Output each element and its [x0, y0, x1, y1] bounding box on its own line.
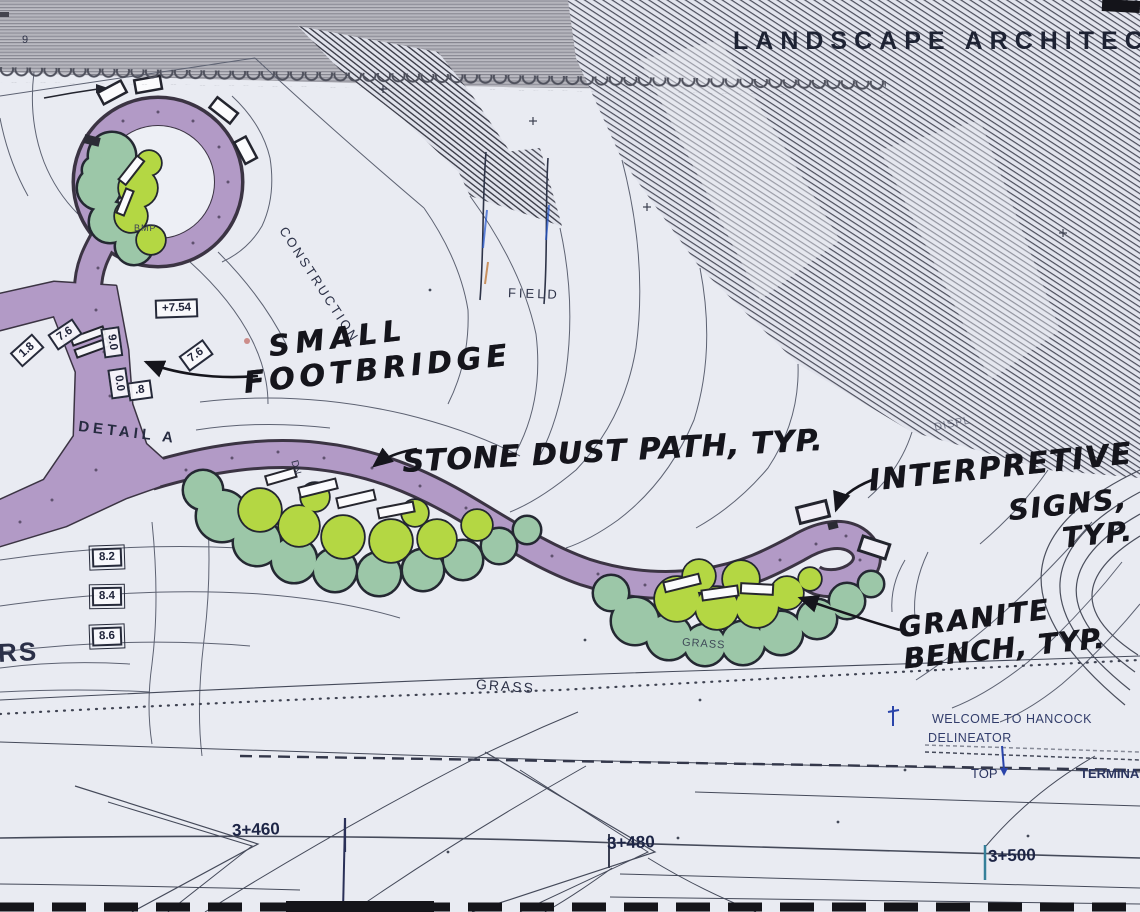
elevation-box: 8.2	[92, 547, 123, 567]
elevation-box: 8.4	[92, 587, 122, 606]
landscape-plan-screenshot: LANDSCAPE ARCHITECTU CONSTRUCTION FIELD …	[0, 0, 1140, 912]
sheet-title: LANDSCAPE ARCHITECTU	[733, 27, 1140, 56]
elevation-box: 8.6	[92, 626, 123, 646]
photo-corner-mark	[1102, 0, 1140, 13]
elevation-box: .8	[127, 379, 153, 401]
label-small-nine: 9	[22, 34, 28, 46]
label-terminal: TERMINA	[1080, 766, 1139, 781]
label-delineator: DELINEATOR	[928, 731, 1012, 745]
label-top: TOP	[971, 766, 998, 781]
elevation-box: +7.54	[155, 298, 199, 318]
station-label-3500: 3+500	[988, 845, 1036, 867]
station-label-3460: 3+460	[232, 819, 280, 841]
station-label-3480: 3+480	[607, 832, 655, 854]
bench-symbol	[741, 583, 773, 595]
label-field: FIELD	[508, 285, 560, 302]
red-speck	[244, 338, 250, 344]
label-rs: RS	[0, 636, 39, 669]
label-bmp: BMP	[134, 223, 157, 233]
label-welcome-to-hancock: WELCOME TO HANCOCK	[932, 712, 1092, 726]
elevation-box: 9.0	[101, 326, 124, 358]
elevation-box: 0.0	[108, 367, 131, 399]
